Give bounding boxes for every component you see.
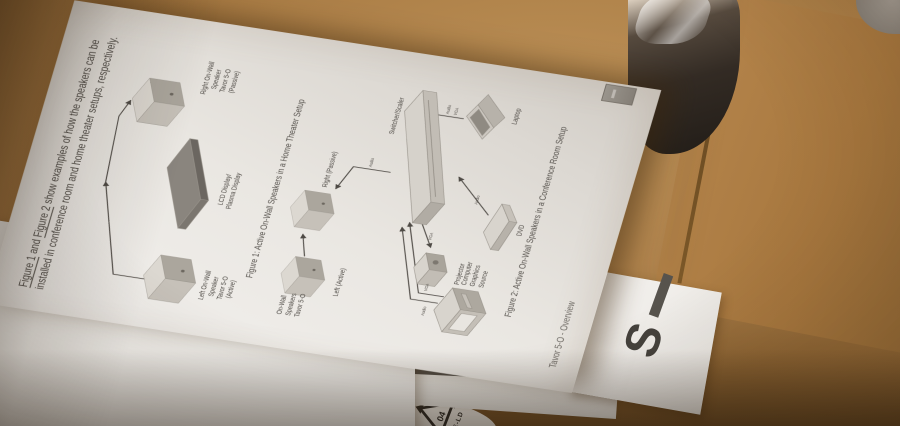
svg-text:Audio: Audio [419,306,427,316]
svg-text:VGA: VGA [426,232,434,240]
svg-text:Right (Passive): Right (Passive) [321,151,339,188]
laptop-graphic [460,92,510,141]
page-number-tab [601,84,637,106]
computer-graphic [428,286,492,337]
page-footer: Tavor 5-O - Overview [548,301,578,369]
left-speaker-graphic [275,255,330,298]
switcher-graphic [373,89,475,227]
svg-text:Audio: Audio [472,195,480,205]
svg-text:Audio: Audio [367,157,375,167]
display-graphic [150,137,225,232]
dvd-graphic [479,203,522,253]
svg-text:Switcher/Scaler: Switcher/Scaler [388,96,407,134]
paper-stack: Figure 1 and Figure 2 show examples of h… [0,0,885,426]
svg-text:VGA: VGA [452,107,460,115]
svg-text:VGA: VGA [422,283,430,291]
svg-text:Laptop: Laptop [510,108,523,126]
projector-graphic [409,252,451,288]
left-speaker-graphic [137,253,202,305]
right-speaker-graphic [126,76,191,128]
right-speaker-graphic [285,189,340,232]
photo-scene: 04 PE-LD 04 PE-LD S Figure 1 and Figure [0,0,900,426]
svg-text:Left (Active): Left (Active) [332,268,348,297]
svg-text:DVD: DVD [515,224,526,237]
